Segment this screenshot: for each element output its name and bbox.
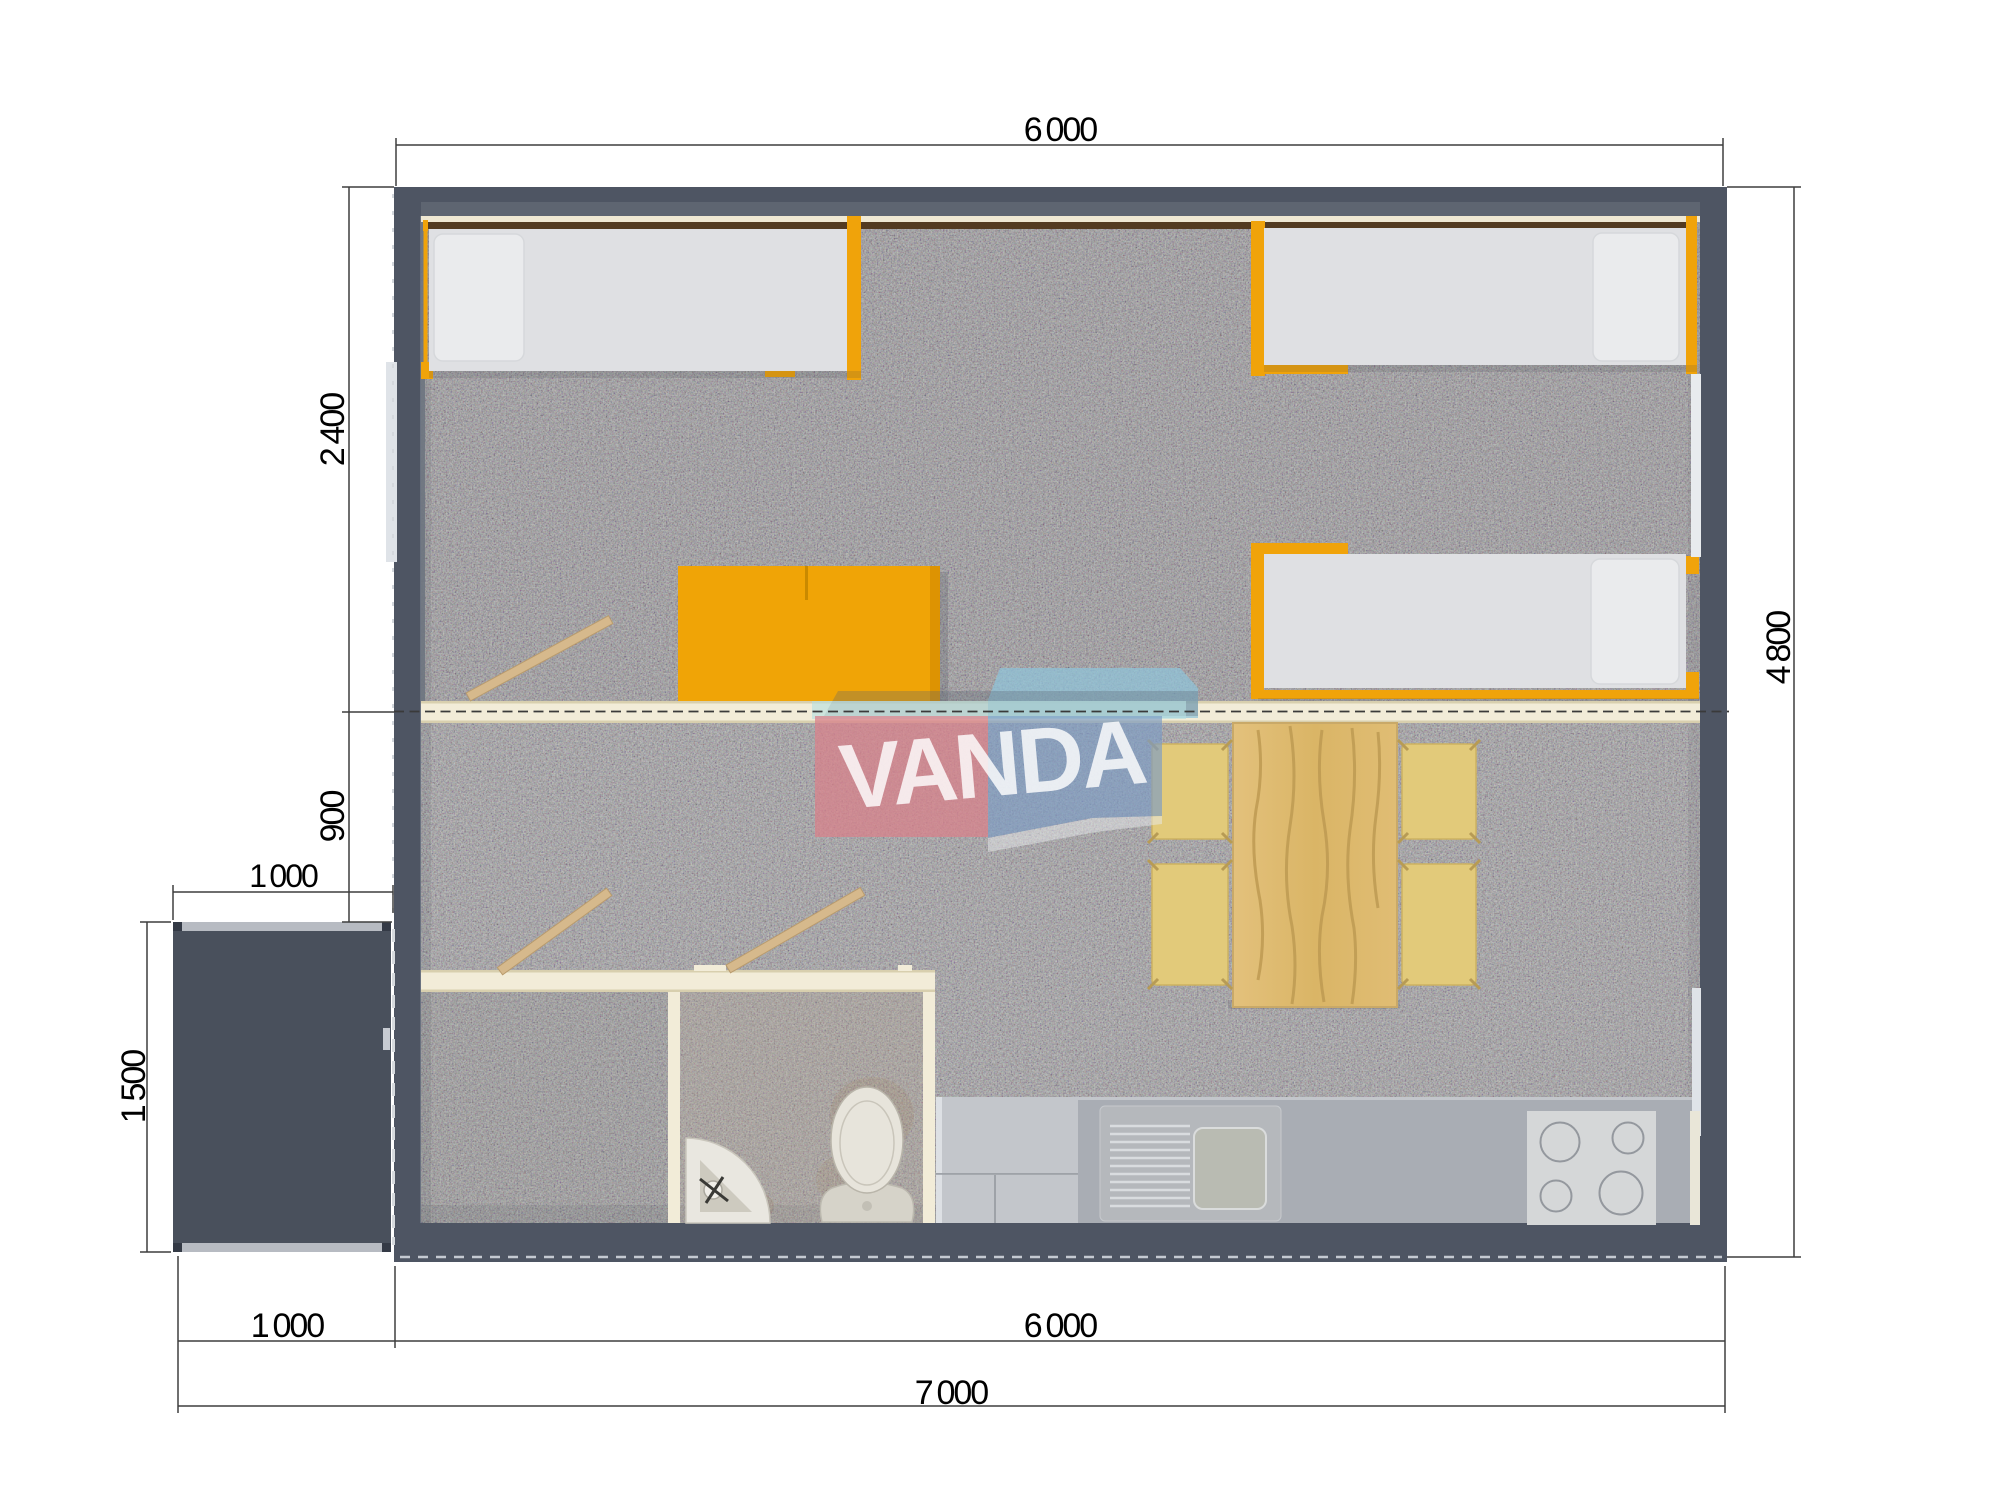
svg-text:900: 900 bbox=[314, 791, 352, 843]
svg-text:7 000: 7 000 bbox=[915, 1374, 989, 1412]
svg-text:1 000: 1 000 bbox=[249, 858, 318, 894]
svg-text:6 000: 6 000 bbox=[1024, 1307, 1098, 1345]
svg-text:1 000: 1 000 bbox=[251, 1307, 325, 1345]
svg-text:1 500: 1 500 bbox=[115, 1050, 153, 1124]
svg-text:2 400: 2 400 bbox=[314, 393, 352, 467]
svg-text:6 000: 6 000 bbox=[1024, 111, 1098, 149]
svg-text:4 800: 4 800 bbox=[1760, 611, 1798, 685]
